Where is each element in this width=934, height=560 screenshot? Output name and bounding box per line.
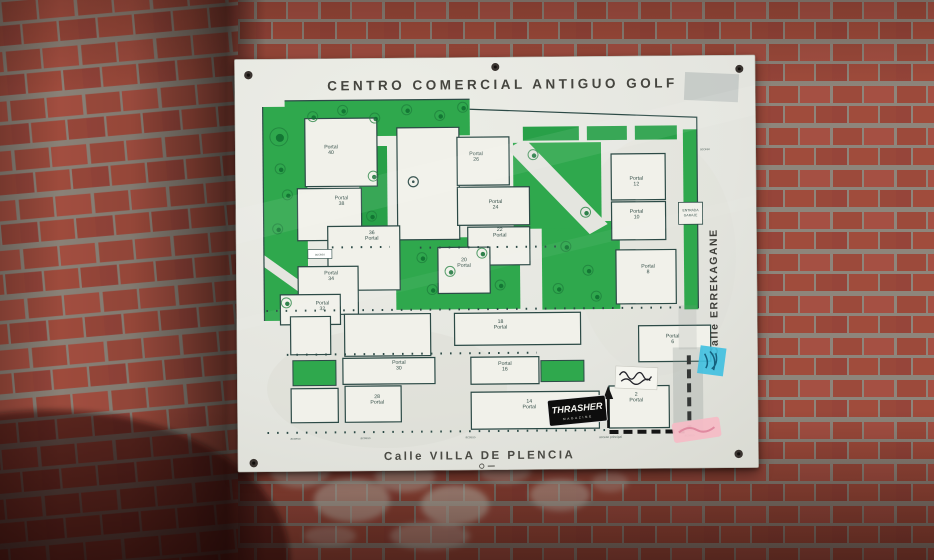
photo-scene: CENTRO COMERCIAL ANTIGUO GOLF <box>0 0 934 560</box>
screw-bottom-left <box>249 459 257 467</box>
building-portal-2 <box>609 385 669 428</box>
green-kiosk <box>293 360 336 385</box>
screw-bottom-right <box>734 450 742 458</box>
thrasher-sticker: THRASHER MAGAZINE <box>547 395 607 426</box>
building-portal-8 <box>616 249 676 304</box>
access-label: acceso <box>290 437 300 441</box>
building <box>344 314 430 357</box>
access-label: acceso <box>315 252 325 256</box>
map-sign: CENTRO COMERCIAL ANTIGUO GOLF <box>234 55 759 473</box>
sign-title: CENTRO COMERCIAL ANTIGUO GOLF <box>327 75 678 93</box>
building-portal-40 <box>305 118 378 187</box>
building-portal-30 <box>343 358 435 385</box>
blue-sticker <box>697 345 726 376</box>
access-label: acceso <box>465 435 475 439</box>
screw-top-center <box>491 63 499 71</box>
green-kiosk <box>541 360 584 381</box>
smudge <box>678 305 696 349</box>
street-label-bottom: Calle VILLA DE PLENCIA <box>384 449 575 463</box>
access-label: acceso <box>700 147 710 151</box>
building-portal-18 <box>454 312 580 345</box>
screw-top-right <box>735 65 743 73</box>
building <box>290 316 330 354</box>
access-label: acceso <box>360 436 370 440</box>
street-label-right: Calle ERREKAGANE <box>708 228 721 355</box>
building <box>291 388 338 422</box>
screw-top-left <box>244 71 252 79</box>
main-access-label: acceso principal <box>599 435 622 439</box>
graffiti-sticker <box>615 366 658 390</box>
